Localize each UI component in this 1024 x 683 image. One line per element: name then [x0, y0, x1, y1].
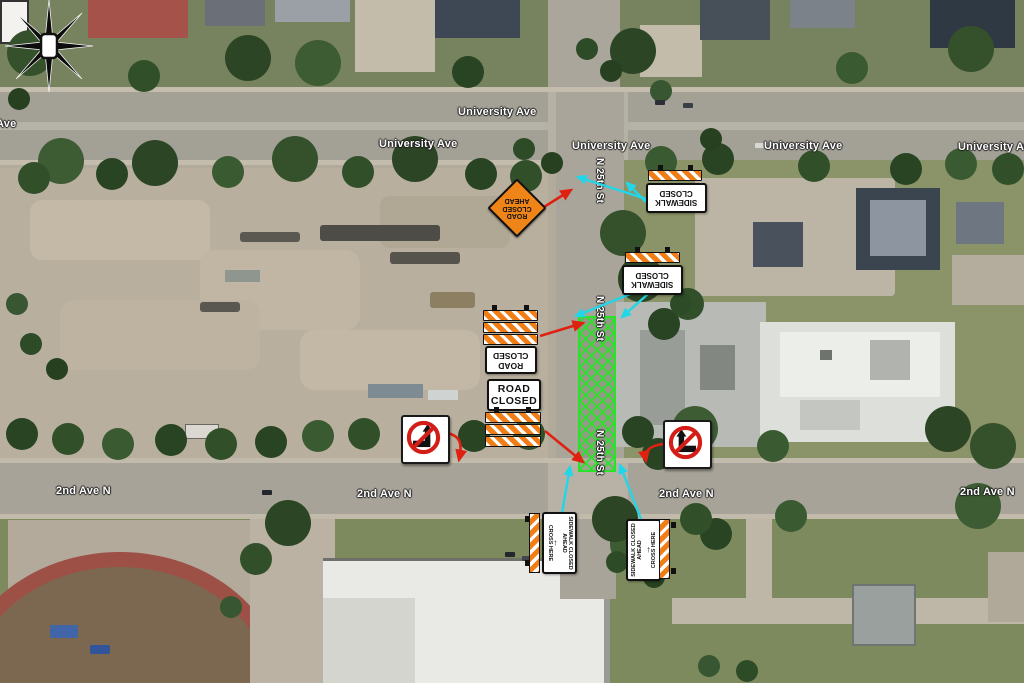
street-label-university-ave: University Ave — [572, 140, 650, 152]
truck — [185, 424, 219, 439]
barricade-rail — [483, 322, 538, 333]
street-label-2nd-ave-n: 2nd Ave N — [960, 486, 1015, 498]
sign-line: CROSS HERE — [547, 525, 553, 561]
sign-line: CLOSED — [493, 351, 528, 361]
rooftop-unit — [820, 350, 832, 360]
building-roof — [956, 202, 1004, 244]
rooftop-unit — [800, 400, 860, 430]
sign-line: SIDEWALK CLOSED — [566, 516, 572, 569]
street-label-university-ave: University Ave — [458, 106, 536, 118]
building-industrial-roof — [780, 332, 940, 397]
road-2nd-ave-n — [0, 463, 1024, 514]
container — [225, 270, 260, 282]
building-roof — [870, 200, 926, 256]
street-label-2nd-ave-n: 2nd Ave N — [56, 485, 111, 497]
barricade-rail — [529, 513, 540, 573]
street-label-2nd-ave-n: 2nd Ave N — [357, 488, 412, 500]
sign-line: CLOSED — [631, 271, 673, 280]
car — [655, 100, 665, 105]
road-closed-sign-inverted: ROAD CLOSED — [485, 346, 537, 374]
barricade-rail — [625, 252, 680, 263]
barricade-rail — [485, 436, 541, 447]
tarp — [50, 625, 78, 638]
rooftop-unit — [870, 340, 910, 380]
rooftop-unit — [640, 330, 685, 425]
cross-here-arrow-icon: → — [643, 546, 650, 555]
no-turn-icon — [403, 417, 444, 458]
container — [428, 390, 458, 400]
sidewalk-closed-ahead-sign-west: SIDEWALK CLOSED AHEAD ← CROSS HERE — [542, 512, 577, 574]
sign-line: CLOSED — [502, 204, 531, 212]
sign-text: SIDEWALK CLOSED — [655, 189, 697, 207]
lot-patch — [30, 200, 210, 260]
material-pile — [240, 232, 300, 242]
compass-rose-icon — [3, 0, 95, 92]
building-roof — [790, 0, 855, 28]
driveway — [355, 0, 435, 72]
parking-sliver — [988, 552, 1024, 622]
sign-line: ROAD — [507, 212, 528, 220]
sign-text: SIDEWALK CLOSED — [631, 271, 673, 289]
barricade-rail — [483, 334, 538, 345]
driveway-east — [952, 255, 1024, 305]
sign-line: CLOSED — [491, 395, 537, 407]
street-label-university-ave: University Ave — [379, 138, 457, 150]
barricade-rail — [648, 170, 702, 181]
road-median — [0, 122, 1024, 130]
building-roof — [753, 222, 803, 267]
lot-patch — [300, 330, 480, 390]
tree-cluster — [576, 38, 598, 60]
sidewalk-closed-ahead-sign-east: SIDEWALK CLOSED AHEAD → CROSS HERE — [626, 519, 661, 581]
sidewalk-closed-sign: SIDEWALK CLOSED — [646, 183, 707, 213]
material-pile — [390, 252, 460, 264]
building-roof — [930, 0, 1015, 48]
sign-text: SIDEWALK CLOSED AHEAD → CROSS HERE — [628, 521, 660, 579]
road-closed-ahead-sign: ROAD CLOSED AHEAD — [491, 182, 543, 234]
street-label-n-25th-st: N 25th St — [594, 158, 605, 203]
path — [746, 519, 772, 611]
material-pile — [200, 302, 240, 312]
building-arena-annex — [323, 598, 415, 683]
material-pile — [430, 292, 475, 308]
street-label-2nd-ave-n: 2nd Ave N — [659, 488, 714, 500]
truck — [368, 384, 423, 398]
building-roof-red — [88, 0, 188, 38]
building-roof — [435, 0, 520, 38]
street-label-university-ave: University Ave — [0, 118, 16, 130]
sign-line: CROSS HERE — [650, 532, 656, 568]
building-roof — [205, 0, 265, 26]
sign-text: ROAD CLOSED — [493, 351, 528, 370]
no-turn-sign-east — [663, 420, 712, 469]
sidewalk-closed-sign: SIDEWALK CLOSED — [622, 265, 683, 295]
path — [672, 598, 1024, 624]
driveway — [640, 25, 702, 77]
tarp — [90, 645, 110, 654]
barricade-rail — [485, 412, 541, 423]
material-pile — [320, 225, 440, 241]
sign-line: SIDEWALK — [631, 280, 673, 289]
barricade-rail — [485, 424, 541, 435]
street-label-n-25th-st: N 25th St — [594, 430, 605, 475]
building-roof — [275, 0, 350, 22]
tree-cluster — [128, 60, 160, 92]
rooftop-unit — [700, 345, 735, 390]
sign-line: ROAD — [491, 383, 537, 395]
sign-text: SIDEWALK CLOSED AHEAD ← CROSS HERE — [544, 514, 576, 572]
street-label-university-ave: University Ave — [764, 140, 842, 152]
building-roof — [700, 0, 770, 40]
sign-line: SIDEWALK CLOSED — [631, 523, 637, 576]
sign-text: ROAD CLOSED — [491, 383, 537, 407]
building-small — [852, 584, 916, 646]
diamond-text: ROAD CLOSED AHEAD — [491, 182, 543, 234]
sign-line: CLOSED — [655, 189, 697, 198]
no-turn-icon — [665, 422, 706, 463]
cross-here-arrow-icon: ← — [553, 539, 560, 548]
barricade-rail — [483, 310, 538, 321]
traffic-control-plan-map: University Ave University Ave University… — [0, 0, 1024, 683]
barricade-rail — [659, 519, 670, 579]
sign-line: AHEAD — [505, 197, 530, 205]
sign-line: ROAD — [493, 360, 528, 370]
no-turn-sign-west — [401, 415, 450, 464]
street-label-university-ave: University Ave — [958, 141, 1024, 153]
street-label-n-25th-st: N 25th St — [594, 296, 605, 341]
sign-line: SIDEWALK — [655, 198, 697, 207]
